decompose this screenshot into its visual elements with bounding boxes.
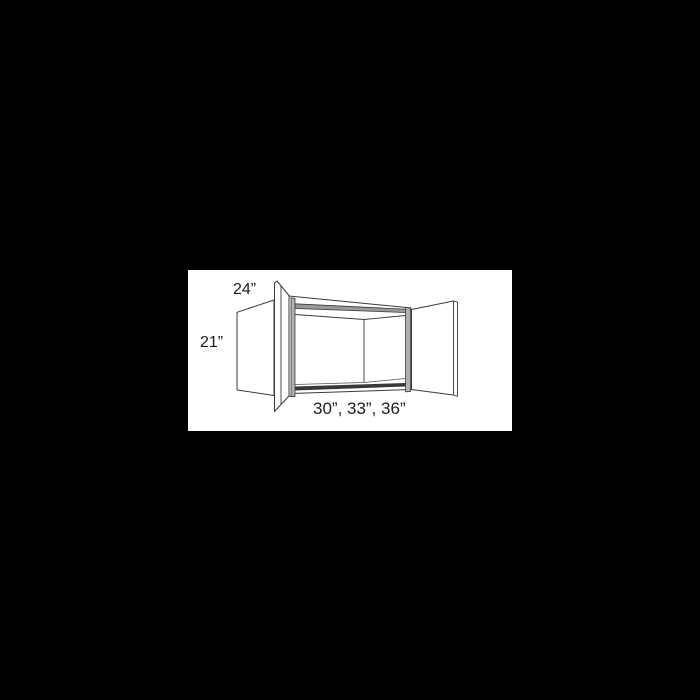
width-options-label: 30”, 33”, 36” — [313, 400, 406, 417]
cabinet-right-stile — [406, 307, 411, 392]
cabinet-right-door — [412, 301, 454, 395]
depth-dimension-label: 24” — [233, 282, 256, 298]
height-dimension-label: 21” — [200, 335, 223, 351]
cabinet-left-stile — [291, 298, 295, 397]
cabinet-top-rail-shading — [295, 304, 412, 313]
diagram-canvas: 24” 21” 30”, 33”, 36” — [188, 270, 512, 431]
cabinet-left-side-panel — [237, 300, 274, 396]
cabinet-bottom-front-edge — [291, 390, 412, 394]
page-background: 24” 21” 30”, 33”, 36” — [0, 0, 700, 700]
cabinet-right-door-edge — [454, 301, 458, 396]
cabinet-left-door — [275, 281, 290, 412]
cabinet-interior-ceiling-edge — [295, 315, 406, 320]
